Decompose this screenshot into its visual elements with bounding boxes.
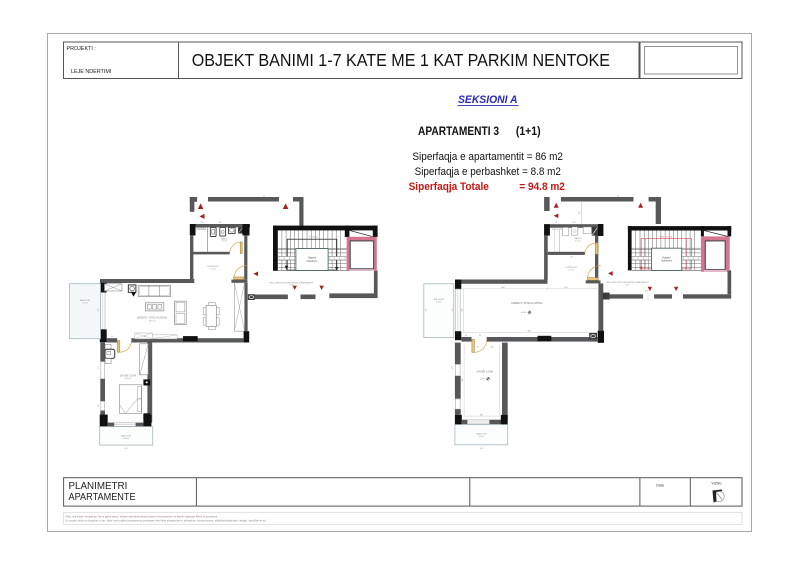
svg-text:SEKSIONI A: SEKSIONI A — [458, 94, 518, 106]
svg-text:38.9 m2: 38.9 m2 — [149, 321, 156, 323]
svg-text:4.8 m2: 4.8 m2 — [436, 301, 442, 303]
svg-text:90: 90 — [111, 336, 113, 338]
svg-text:BALLKON: BALLKON — [476, 433, 487, 436]
svg-text:3.1 m2: 3.1 m2 — [568, 269, 574, 271]
svg-text:DHOME GJUMI: DHOME GJUMI — [120, 375, 137, 377]
svg-text:APARTAMENTI 3: APARTAMENTI 3 — [418, 124, 499, 138]
svg-text:+0.00: +0.00 — [479, 378, 485, 380]
svg-text:9 10 11 12: 9 10 11 12 — [309, 236, 318, 238]
svg-text:305: 305 — [452, 309, 454, 312]
svg-text:235: 235 — [490, 347, 493, 349]
svg-text:90: 90 — [465, 335, 467, 337]
svg-text:162: 162 — [645, 290, 648, 292]
svg-text:90: 90 — [617, 195, 619, 197]
svg-text:90: 90 — [263, 195, 265, 197]
svg-text:DHOME GJUMI: DHOME GJUMI — [477, 372, 494, 374]
svg-text:AMBIENT I DITES+KUZHINA: AMBIENT I DITES+KUZHINA — [137, 317, 168, 320]
svg-text:LEJE NDERTIMI: LEJE NDERTIMI — [71, 69, 111, 75]
svg-text:Plani nuk eshte i zmadhuar. Ne: Plani nuk eshte i zmadhuar. Ne te gjitha… — [66, 514, 219, 518]
svg-text:PLANIMETRI: PLANIMETRI — [69, 481, 128, 492]
svg-text:+0.00: +0.00 — [625, 284, 629, 286]
svg-text:240: 240 — [219, 222, 222, 224]
svg-text:4.2 m2: 4.2 m2 — [222, 241, 228, 243]
svg-text:3.1 m2: 3.1 m2 — [210, 269, 216, 271]
svg-text:4.8 m2: 4.8 m2 — [82, 303, 88, 305]
svg-text:90: 90 — [477, 347, 479, 349]
svg-text:305: 305 — [98, 309, 100, 312]
svg-text:170: 170 — [452, 367, 454, 370]
svg-text:Ky vizatim duhet te kuptohet s: Ky vizatim duhet te kuptohet si nje i pl… — [66, 519, 267, 523]
svg-text:105: 105 — [579, 211, 581, 214]
svg-text:BALLKON: BALLKON — [121, 434, 132, 437]
svg-text:240: 240 — [480, 448, 483, 450]
svg-text:120: 120 — [201, 222, 204, 224]
svg-text:240: 240 — [573, 222, 576, 224]
svg-text:305: 305 — [462, 308, 464, 311]
svg-text:100: 100 — [426, 309, 428, 312]
svg-text:120: 120 — [555, 222, 558, 224]
svg-text:12.8 m2: 12.8 m2 — [125, 378, 132, 380]
svg-text:80: 80 — [144, 336, 146, 338]
svg-text:BALLKON: BALLKON — [80, 299, 91, 302]
svg-text:PROJEKTI :: PROJEKTI : — [67, 46, 96, 52]
svg-text:80: 80 — [479, 335, 481, 337]
svg-text:(1+1): (1+1) — [516, 124, 541, 138]
svg-text:VIZSU: VIZSU — [712, 482, 723, 486]
svg-text:AMBIENT I DITES+KUZHINA: AMBIENT I DITES+KUZHINA — [511, 302, 543, 305]
svg-text:Siperfaqja e apartamentit = 8: Siperfaqja e apartamentit = 86 m2 — [412, 151, 563, 163]
svg-text:430: 430 — [462, 378, 464, 381]
svg-text:Data: Data — [656, 484, 664, 488]
svg-text:10 11 12 13 14: 10 11 12 13 14 — [660, 237, 672, 239]
svg-text:240: 240 — [570, 256, 573, 258]
svg-text:Nderkomi: Nderkomi — [661, 260, 672, 263]
svg-text:BALLKON: BALLKON — [434, 298, 445, 301]
svg-text:OBJEKT BANIMI 1-7 KATE ME 1 KA: OBJEKT BANIMI 1-7 KATE ME 1 KAT PARKIM N… — [192, 50, 610, 70]
svg-text:+0.00: +0.00 — [520, 312, 526, 314]
svg-text:= 94.8 m2: = 94.8 m2 — [519, 181, 565, 193]
svg-text:Siperfaqja Totale: Siperfaqja Totale — [409, 181, 489, 193]
svg-text:Nderkomi: Nderkomi — [307, 260, 318, 263]
svg-text:4.0 m2: 4.0 m2 — [123, 438, 129, 440]
svg-text:4.2 m2: 4.2 m2 — [575, 241, 581, 243]
svg-text:170: 170 — [98, 367, 100, 370]
svg-text:Siperfaqja e perbashket = 8.8: Siperfaqja e perbashket = 8.8 m2 — [415, 166, 561, 178]
svg-text:+0.00: +0.00 — [289, 285, 293, 287]
svg-text:240: 240 — [125, 448, 128, 450]
svg-text:140: 140 — [98, 405, 100, 408]
svg-text:APARTAMENTE: APARTAMENTE — [69, 492, 136, 503]
svg-text:4.0 m2: 4.0 m2 — [479, 436, 485, 438]
